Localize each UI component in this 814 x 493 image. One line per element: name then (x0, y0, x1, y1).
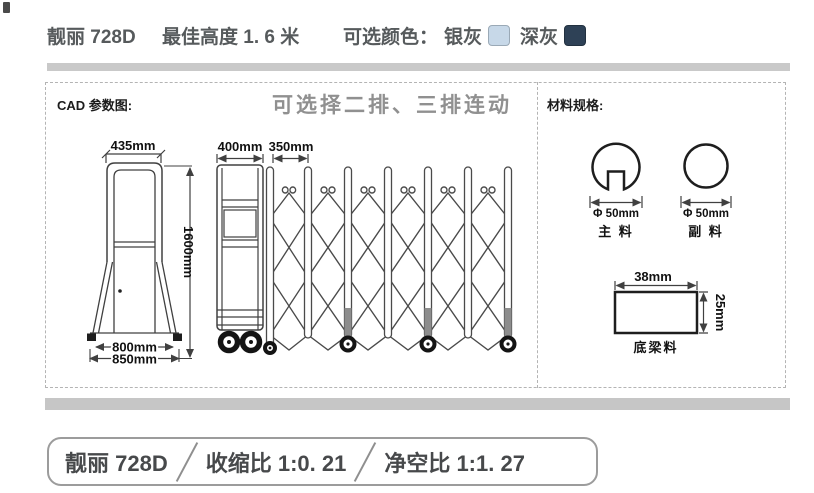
cad-diagram: 435mm 800mm 850mm 1600mm (45, 82, 537, 388)
aux-tube-dimension-label: Φ 50mm (683, 208, 729, 220)
ratio-summary-bar: 靓丽 728D 收缩比 1:0. 21 净空比 1:1. 27 (47, 437, 598, 486)
divider-slash (176, 442, 198, 482)
main-tube-dimension-label: Φ 50mm (593, 208, 639, 220)
divider-slash (354, 442, 376, 482)
corner-artifact (3, 2, 10, 13)
front-view-base-total-width-label: 850mm (112, 352, 157, 367)
front-view-diagram (87, 150, 192, 362)
bottom-beam-height-label: 25mm (713, 294, 728, 332)
product-spec-page: 靓丽 728D 最佳高度 1. 6 米 可选颜色： 银灰 深灰 CAD 参数图:… (0, 0, 814, 493)
materials-diagram: Φ 50mm 主 料 Φ 50mm 副 料 38mm 25mm 底梁料 (537, 82, 786, 388)
footer-model-label: 靓丽 728D (65, 446, 168, 478)
bottom-beam-width-label: 38mm (634, 269, 672, 284)
aux-tube-profile (685, 145, 728, 188)
bottom-beam-dimensions (615, 281, 708, 333)
bottom-divider-bar (45, 398, 790, 410)
extended-view-panel-pitch-label: 350mm (269, 139, 314, 154)
color-silver-label: 银灰 (444, 22, 482, 49)
bottom-beam-profile (615, 292, 697, 333)
extended-view-diagram (217, 154, 515, 353)
shrink-ratio-label: 收缩比 1:0. 21 (206, 446, 347, 478)
aux-tube-label: 副 料 (688, 224, 724, 239)
best-height-label: 最佳高度 1. 6 米 (162, 22, 299, 49)
clearance-ratio-label: 净空比 1:1. 27 (384, 446, 525, 478)
main-tube-dimension (590, 196, 642, 208)
color-swatch-silver (488, 25, 510, 46)
aux-tube-dimension (681, 196, 731, 208)
front-view-height-label: 1600mm (181, 226, 196, 278)
color-options: 可选颜色： 银灰 深灰 (343, 22, 586, 49)
color-dark-label: 深灰 (520, 22, 558, 49)
main-tube-label: 主 料 (598, 224, 634, 239)
extended-view-trolley-width-label: 400mm (218, 139, 263, 154)
main-tube-profile (592, 144, 639, 190)
bottom-beam-label: 底梁料 (633, 340, 678, 355)
product-model-title: 靓丽 728D (47, 22, 136, 49)
front-view-top-width-label: 435mm (111, 138, 156, 153)
color-swatch-dark (564, 25, 586, 46)
top-divider-bar (47, 63, 790, 71)
color-options-label: 可选颜色： (343, 22, 438, 49)
